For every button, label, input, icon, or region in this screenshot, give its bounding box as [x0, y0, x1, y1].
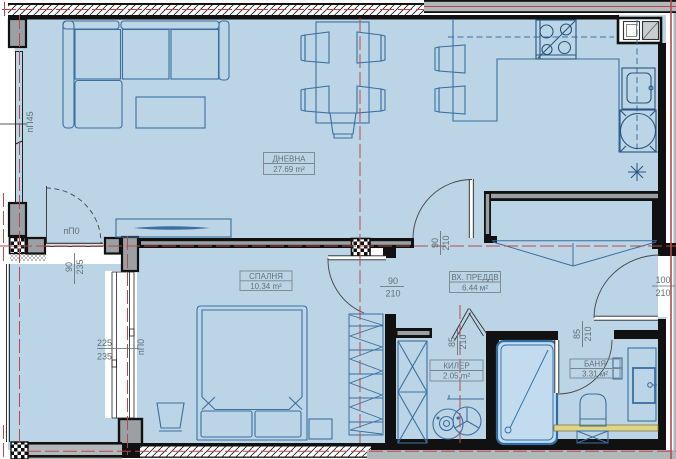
svg-text:пП45: пП45 [25, 111, 35, 132]
svg-text:210: 210 [441, 235, 451, 250]
svg-text:90: 90 [430, 238, 440, 248]
svg-text:100: 100 [655, 275, 670, 285]
svg-text:СПАЛНЯ: СПАЛНЯ [249, 272, 283, 281]
svg-text:85: 85 [447, 337, 457, 347]
svg-text:пП0: пП0 [136, 339, 146, 355]
svg-text:210: 210 [655, 288, 670, 298]
svg-text:10.34 m²: 10.34 m² [250, 282, 282, 291]
svg-text:210: 210 [583, 326, 593, 341]
svg-text:27.69 m²: 27.69 m² [273, 165, 305, 174]
svg-text:235: 235 [75, 259, 85, 274]
svg-text:210: 210 [458, 334, 468, 349]
svg-text:БАНЯ: БАНЯ [584, 360, 606, 369]
svg-text:225: 225 [97, 338, 112, 348]
svg-text:85: 85 [572, 329, 582, 339]
svg-text:90: 90 [388, 276, 398, 286]
svg-text:ДНЕВНА: ДНЕВНА [273, 155, 307, 164]
svg-text:235: 235 [97, 352, 112, 362]
svg-text:6.44 м²: 6.44 м² [462, 284, 488, 293]
svg-text:90: 90 [64, 262, 74, 272]
svg-text:КИЛЕР: КИЛЕР [443, 362, 469, 371]
svg-text:2.05 m²: 2.05 m² [443, 372, 470, 381]
svg-text:210: 210 [385, 289, 400, 299]
svg-text:ВХ. ПРЕДДВ: ВХ. ПРЕДДВ [451, 273, 498, 282]
svg-text:пП0: пП0 [63, 226, 79, 236]
svg-text:3.31 м²: 3.31 м² [582, 370, 608, 379]
